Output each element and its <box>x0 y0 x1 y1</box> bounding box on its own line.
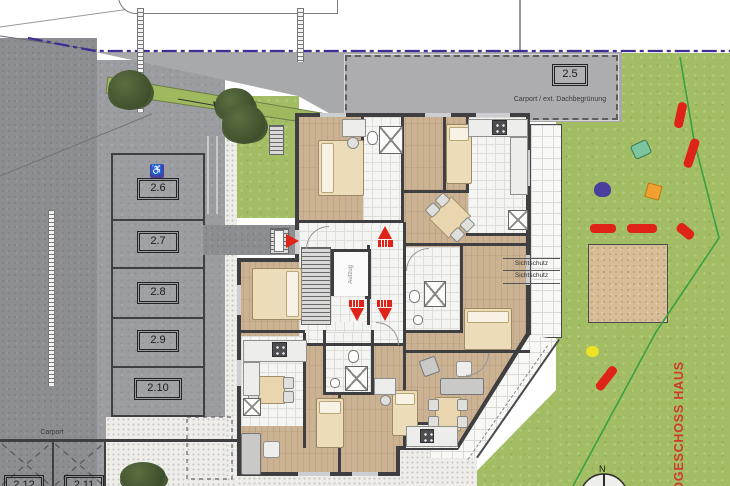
kitchen-cabinet <box>243 398 261 416</box>
parking-stall-label: 2.10 <box>136 380 180 398</box>
interior-wall <box>299 220 403 223</box>
garden-steps <box>269 125 284 155</box>
stall-line <box>111 153 204 155</box>
sofa <box>241 433 261 475</box>
carport-stall-label: 2.11 <box>66 477 102 486</box>
kitchen-column <box>510 137 528 195</box>
tree <box>120 462 166 486</box>
window <box>320 113 346 117</box>
stall-line <box>111 317 204 319</box>
plan-title: ERDGESCHOSS HAUS 2 <box>672 358 698 486</box>
stall-line <box>111 153 113 417</box>
apartment-arrow-icon <box>378 226 392 239</box>
stall-line <box>111 415 204 417</box>
property-boundary <box>28 38 730 51</box>
window <box>237 285 241 315</box>
apartment-tag <box>378 240 393 247</box>
stall-line <box>111 267 204 269</box>
tree <box>222 104 266 144</box>
fence-north2 <box>297 8 304 62</box>
toilet <box>348 350 359 363</box>
window <box>425 113 451 117</box>
stove <box>492 120 507 135</box>
washbasin <box>413 315 423 325</box>
wheelchair-icon: ♿ <box>150 164 164 178</box>
privacy-screen-line <box>503 270 560 271</box>
parking-stall-label: 2.7 <box>139 233 177 251</box>
neighbor-building-outline <box>118 0 338 14</box>
carport-divider <box>52 441 54 486</box>
interior-wall <box>403 243 530 246</box>
window <box>352 472 378 476</box>
interior-wall <box>323 392 374 395</box>
parking-stall-label: 2.6 <box>139 180 177 198</box>
carport-label: Carport <box>28 429 76 436</box>
fence-west <box>48 210 55 386</box>
sofa <box>440 378 484 395</box>
shower <box>424 281 446 307</box>
parking-stall-label: 2.9 <box>139 332 177 350</box>
window <box>237 360 241 386</box>
interior-wall <box>403 330 463 333</box>
apartment-arrow-icon <box>378 308 392 321</box>
toilet <box>409 290 420 303</box>
stove <box>420 429 434 443</box>
bed <box>464 308 512 350</box>
desk-chair <box>347 137 359 149</box>
apartment-tag <box>377 300 392 307</box>
interior-wall <box>323 330 326 394</box>
side-table <box>263 441 280 458</box>
kitchen-cabinet <box>508 210 528 230</box>
bed <box>318 140 364 196</box>
stove <box>272 342 287 357</box>
desk <box>342 119 366 137</box>
play-spring-toy <box>594 182 611 197</box>
carport-stall-label: 2.12 <box>6 477 42 486</box>
parking-stall-label: 2.8 <box>139 284 177 302</box>
interior-wall <box>241 330 305 333</box>
washbasin <box>330 378 340 388</box>
entrance-arrow-icon <box>286 234 299 248</box>
toilet <box>367 131 378 145</box>
bed <box>316 398 344 448</box>
window <box>298 472 330 476</box>
interior-wall <box>466 233 526 236</box>
elevator-label: Aufzug <box>348 265 354 284</box>
stall-line <box>203 153 205 417</box>
play-toy-yellow <box>586 346 599 357</box>
bed <box>252 268 302 320</box>
desk-chair <box>380 395 391 406</box>
tree <box>108 70 152 110</box>
elevator: Aufzug <box>331 249 371 299</box>
privacy-screen-label: Sichtschutz <box>503 272 560 279</box>
privacy-screen-line <box>503 258 560 259</box>
apartment-tag <box>349 300 364 307</box>
window <box>476 113 510 117</box>
carport-divider <box>104 441 106 486</box>
desk <box>374 378 396 395</box>
entrance-label <box>274 230 284 252</box>
stairs <box>301 247 331 325</box>
compass-icon: N <box>580 464 628 486</box>
kitchen-column <box>243 362 260 396</box>
compass-north: N <box>599 464 606 474</box>
terrace-east <box>530 124 562 338</box>
privacy-screen-line <box>503 283 560 284</box>
stall-line <box>111 219 204 221</box>
stall-line <box>111 366 204 368</box>
plan-title-text: ERDGESCHOSS HAUS 2 <box>672 358 700 486</box>
site-plan: 2.5 Carport / ext. Dachbegrünung N <box>0 0 730 486</box>
interior-wall <box>460 245 463 332</box>
apartment-arrow-icon <box>350 308 364 321</box>
privacy-screen-label: Sichtschutz <box>503 260 560 267</box>
shower <box>345 366 368 391</box>
shower <box>379 126 403 154</box>
